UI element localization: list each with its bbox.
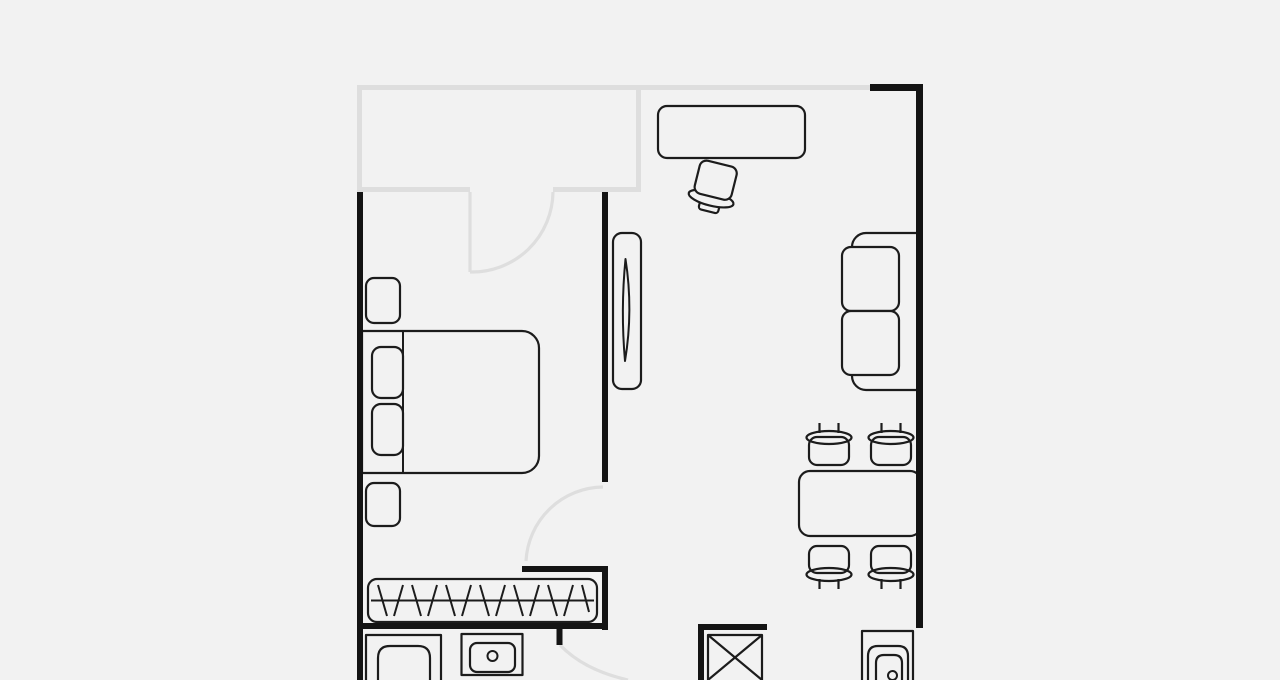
chair-back (807, 568, 852, 581)
mirror-glass-mark (623, 259, 630, 361)
dining-chair-1 (807, 423, 852, 465)
dining-chair-4 (869, 546, 914, 589)
pillow-bottom (372, 404, 403, 455)
toilet-drain (888, 671, 897, 680)
pillow-top (372, 347, 403, 398)
office-chair (686, 158, 742, 217)
basin-drain (488, 651, 498, 661)
sofa-cushion-bottom (842, 311, 899, 375)
balcony-door-arc (470, 192, 553, 272)
floor-plan-canvas (0, 0, 1280, 680)
chair-seat (871, 437, 911, 465)
tall-mirror-cabinet (613, 233, 641, 389)
nightstand-bottom (366, 483, 400, 526)
sofa-cushion-top (842, 247, 899, 311)
bathroom-door-arc (560, 645, 628, 680)
desk (658, 106, 805, 158)
basin-bowl (470, 643, 515, 672)
balcony-walls (357, 85, 872, 192)
dining-table (799, 471, 921, 536)
wardrobe-with-hangers (368, 579, 597, 622)
bottom-fixtures (366, 631, 913, 680)
dining-chair-2 (869, 423, 914, 465)
chair-back (869, 568, 914, 581)
ventilation-shaft-cross (708, 635, 762, 680)
nightstand-top (366, 278, 400, 323)
dining-chair-3 (807, 546, 852, 589)
sink-unit-left-basin (378, 646, 430, 680)
floor-plan-drawing (0, 0, 1280, 680)
living-room-furniture (658, 106, 921, 589)
bedroom-door-arc (526, 487, 603, 561)
chair-seat (809, 437, 849, 465)
bedroom-furniture (362, 233, 641, 526)
